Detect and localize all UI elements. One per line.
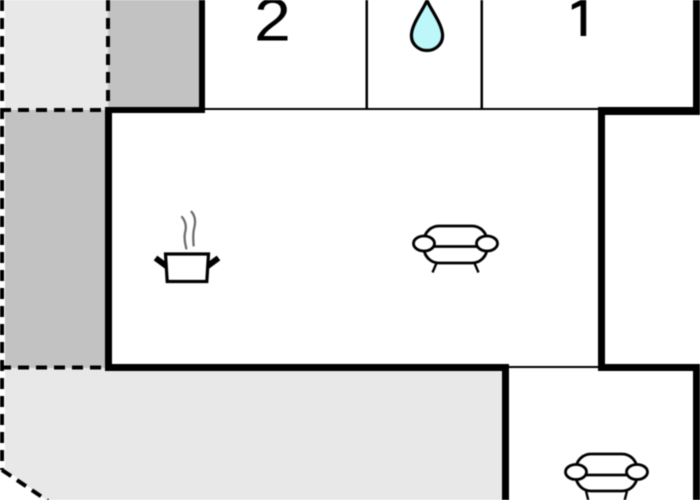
svg-text:2: 2: [254, 0, 291, 54]
